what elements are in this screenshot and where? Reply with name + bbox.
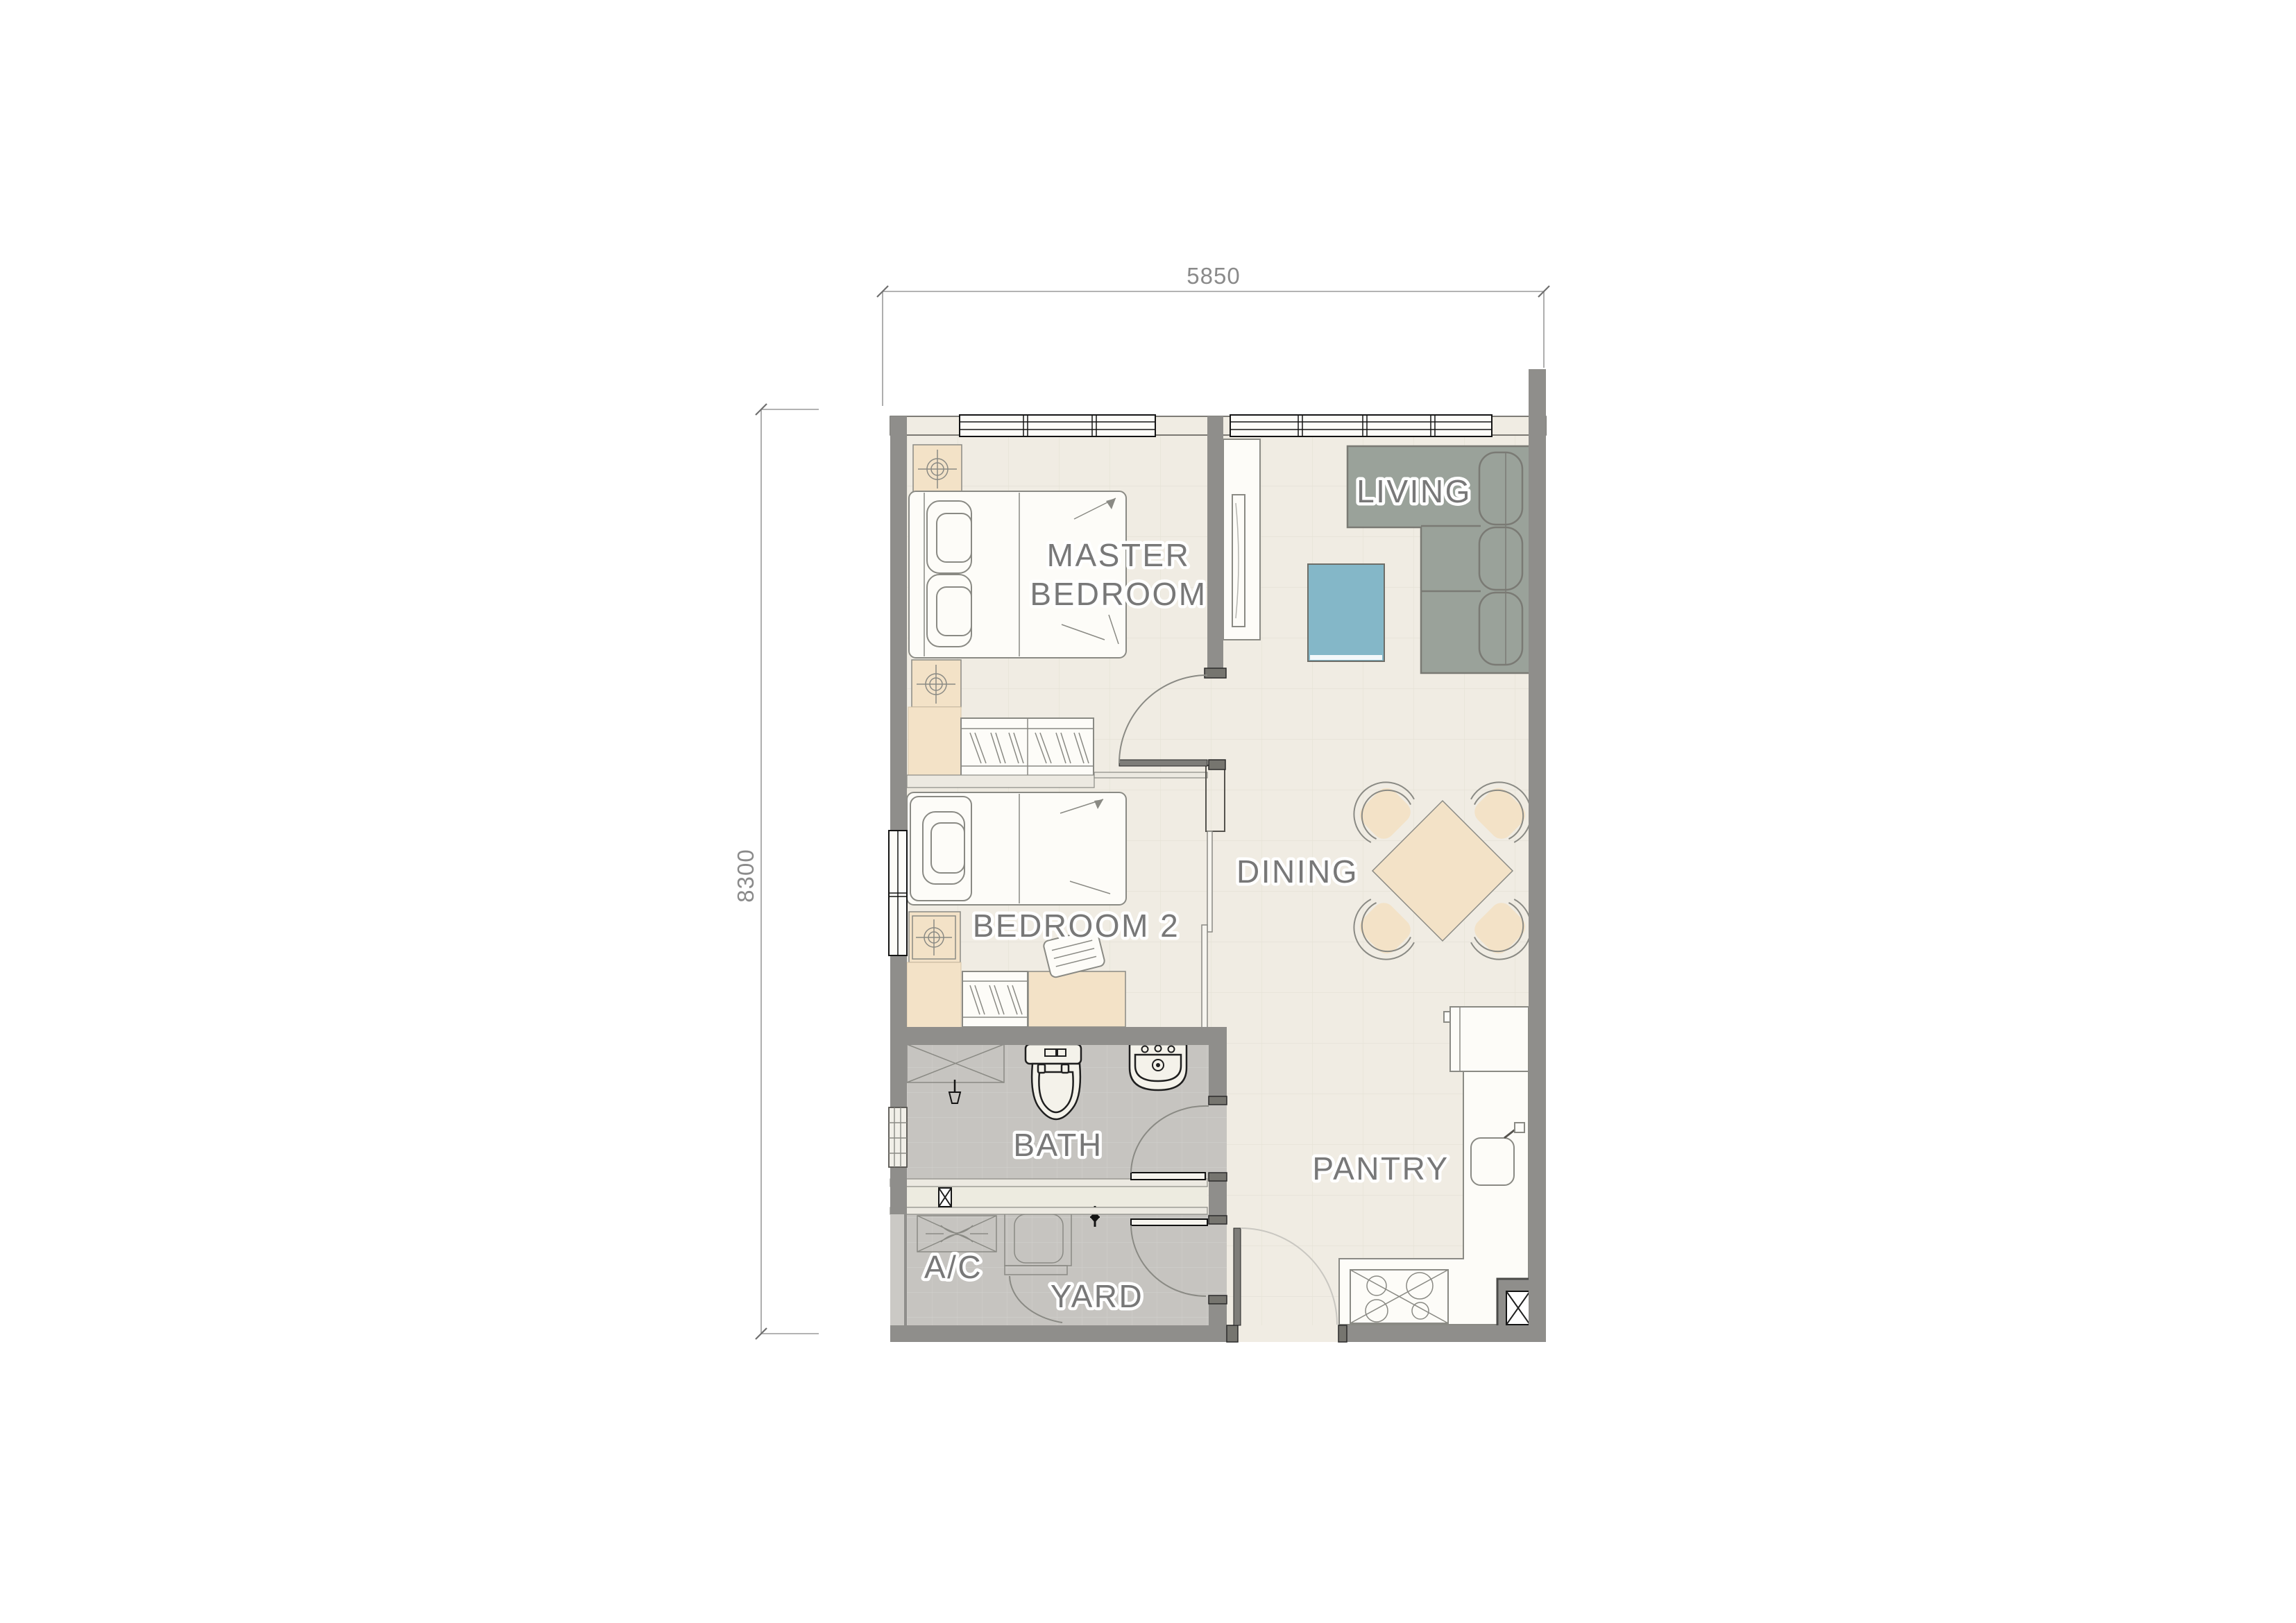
room-label-dining: DINING <box>1236 853 1359 890</box>
stove-icon <box>1350 1270 1448 1323</box>
floor-plan-page: MASTER BEDROOM BEDROOM 2 LIVING DINING B… <box>0 0 2296 1623</box>
window-icon <box>1230 415 1492 436</box>
tv-cabinet-icon <box>1223 439 1260 640</box>
closet-column <box>907 962 961 1028</box>
window-icon <box>960 415 1155 436</box>
louver-window-icon <box>889 1107 907 1167</box>
dimension-height-label: 8300 <box>733 849 758 902</box>
single-bed-icon <box>907 792 1126 905</box>
desk-icon <box>1028 971 1125 1027</box>
double-bed-icon <box>909 491 1126 658</box>
dimension-top <box>877 286 1549 406</box>
closet-column <box>908 707 961 776</box>
room-label-master-bedroom: MASTER <box>1047 537 1191 573</box>
coffee-table-icon <box>1308 564 1384 661</box>
window-icon <box>889 831 907 955</box>
room-label-bath: BATH <box>1013 1127 1103 1163</box>
room-label-master-bedroom: BEDROOM <box>1030 576 1207 612</box>
wardrobe-icon <box>961 718 1094 776</box>
fridge-icon <box>1444 1007 1529 1071</box>
dimension-width-label: 5850 <box>1187 263 1240 289</box>
floor-plan: MASTER BEDROOM BEDROOM 2 LIVING DINING B… <box>0 0 2296 1623</box>
yard-side-wall <box>890 1214 904 1325</box>
room-label-yard: YARD <box>1051 1278 1143 1314</box>
wardrobe-icon <box>962 971 1028 1027</box>
bath-sink-icon <box>1130 1044 1187 1090</box>
room-label-ac: A/C <box>924 1249 983 1285</box>
entrance-threshold <box>1238 1325 1338 1342</box>
room-label-bedroom2: BEDROOM 2 <box>973 908 1180 944</box>
room-label-pantry: PANTRY <box>1312 1150 1449 1187</box>
room-label-living: LIVING <box>1357 473 1472 509</box>
dimension-left <box>756 404 819 1339</box>
